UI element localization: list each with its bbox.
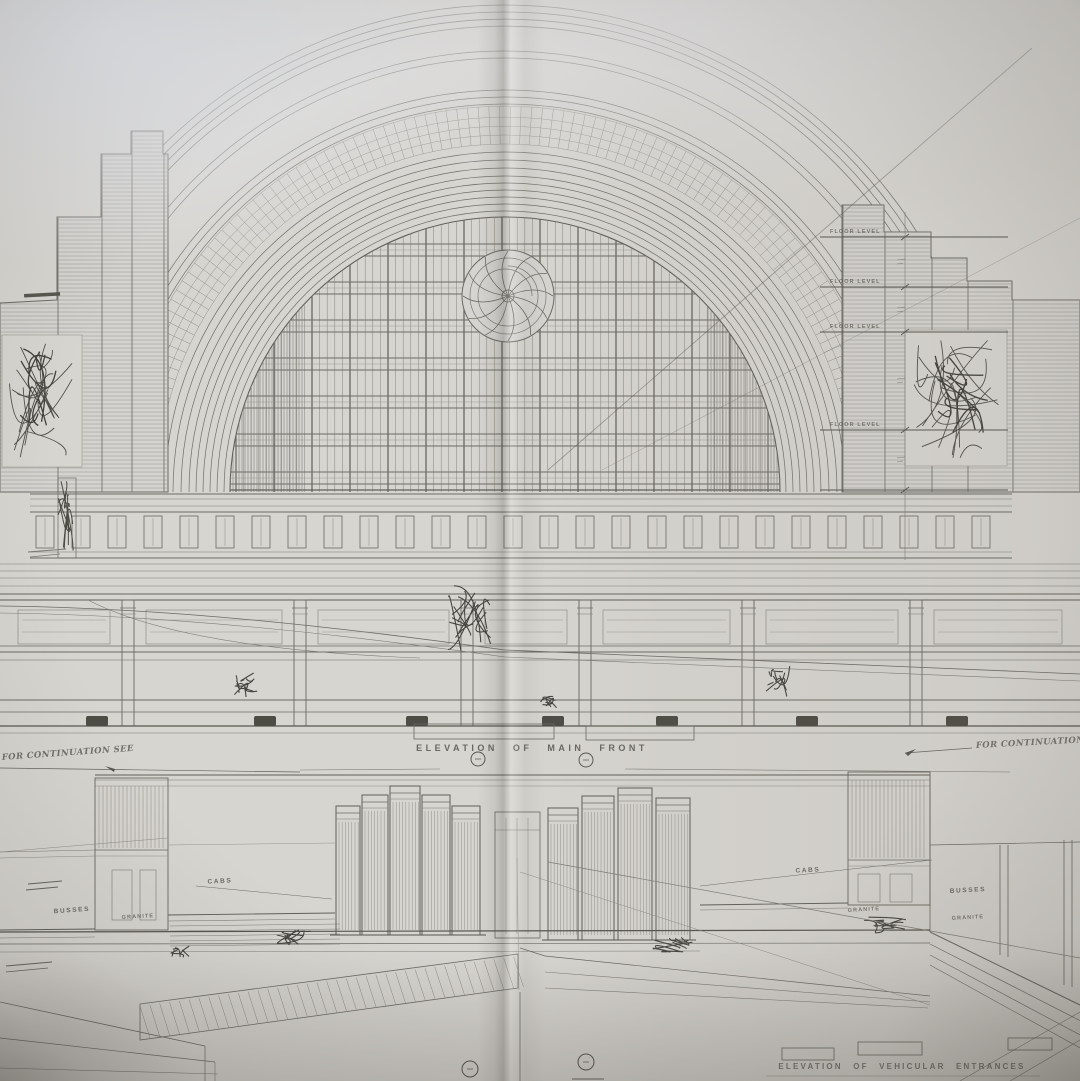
cabs-label-right: CABS xyxy=(795,866,820,874)
floor-level-label-3: FLOOR LEVEL xyxy=(830,324,881,330)
granite-label-left: GRANITE xyxy=(122,913,155,921)
arched-window-grid xyxy=(230,200,780,492)
continuation-note-right: FOR CONTINUATION SEE xyxy=(975,734,1080,751)
vehicular-entrance-elevation xyxy=(0,772,1080,1081)
floor-level-label-4: FLOOR LEVEL xyxy=(830,422,881,428)
book-page-photo: ELEVATION OF MAIN FRONT FLOOR LEVEL FLOO… xyxy=(0,0,1080,1081)
cabs-label-left: CABS xyxy=(207,877,232,885)
busses-label-right: BUSSES xyxy=(950,886,987,895)
colonnade-window-band xyxy=(0,478,1080,594)
busses-label-left: BUSSES xyxy=(54,906,91,916)
granite-label-right: GRANITE xyxy=(952,914,985,922)
elevation-drawing: ELEVATION OF MAIN FRONT FLOOR LEVEL FLOO… xyxy=(0,0,1080,1081)
clock-medallion xyxy=(462,250,554,342)
title-vehicular-elevation: ELEVATION OF VEHICULAR ENTRANCES xyxy=(778,1062,1025,1071)
title-main-elevation: ELEVATION OF MAIN FRONT xyxy=(416,743,648,753)
floor-level-label-1: FLOOR LEVEL xyxy=(830,229,881,235)
floor-level-label-2: FLOOR LEVEL xyxy=(830,279,881,285)
granite-label-mid: GRANITE xyxy=(848,906,881,914)
continuation-note-left: FOR CONTINUATION SEE xyxy=(1,744,135,763)
